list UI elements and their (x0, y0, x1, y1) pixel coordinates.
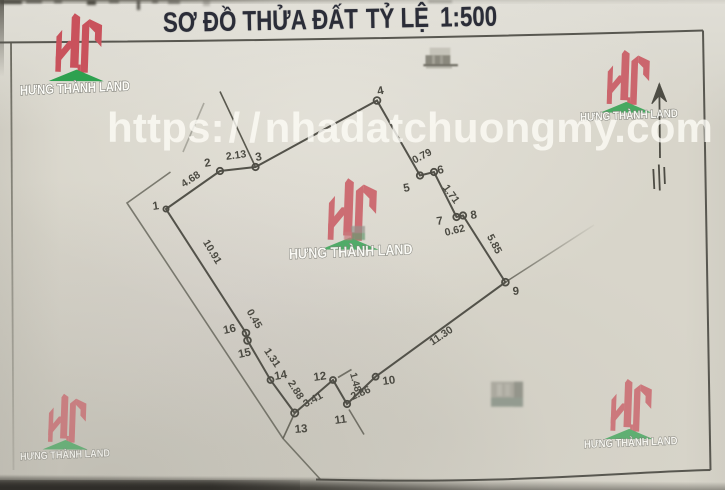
svg-text:12: 12 (313, 370, 327, 384)
svg-text:7: 7 (436, 215, 444, 228)
svg-text:1.71: 1.71 (440, 182, 462, 206)
svg-text:10.91: 10.91 (200, 238, 224, 267)
svg-text:11: 11 (334, 413, 348, 427)
svg-text:4.68: 4.68 (179, 169, 203, 190)
svg-text:1.31: 1.31 (261, 346, 282, 370)
svg-text:0.62: 0.62 (443, 222, 466, 239)
svg-text:5: 5 (402, 182, 411, 195)
svg-text:10: 10 (382, 374, 396, 388)
svg-text:4: 4 (376, 85, 385, 98)
svg-text:3: 3 (254, 151, 262, 164)
svg-text:2: 2 (203, 157, 211, 170)
svg-text:14: 14 (273, 369, 288, 383)
svg-text:9: 9 (512, 285, 519, 298)
svg-text:11.30: 11.30 (427, 324, 455, 348)
svg-text:13: 13 (294, 423, 308, 436)
svg-text:1: 1 (152, 200, 161, 213)
svg-text:8: 8 (470, 209, 479, 222)
svg-text:15: 15 (237, 346, 253, 361)
svg-text:1.48: 1.48 (347, 372, 363, 394)
svg-text:16: 16 (222, 323, 237, 337)
svg-text:0.45: 0.45 (244, 307, 265, 331)
svg-text:6: 6 (436, 164, 444, 177)
